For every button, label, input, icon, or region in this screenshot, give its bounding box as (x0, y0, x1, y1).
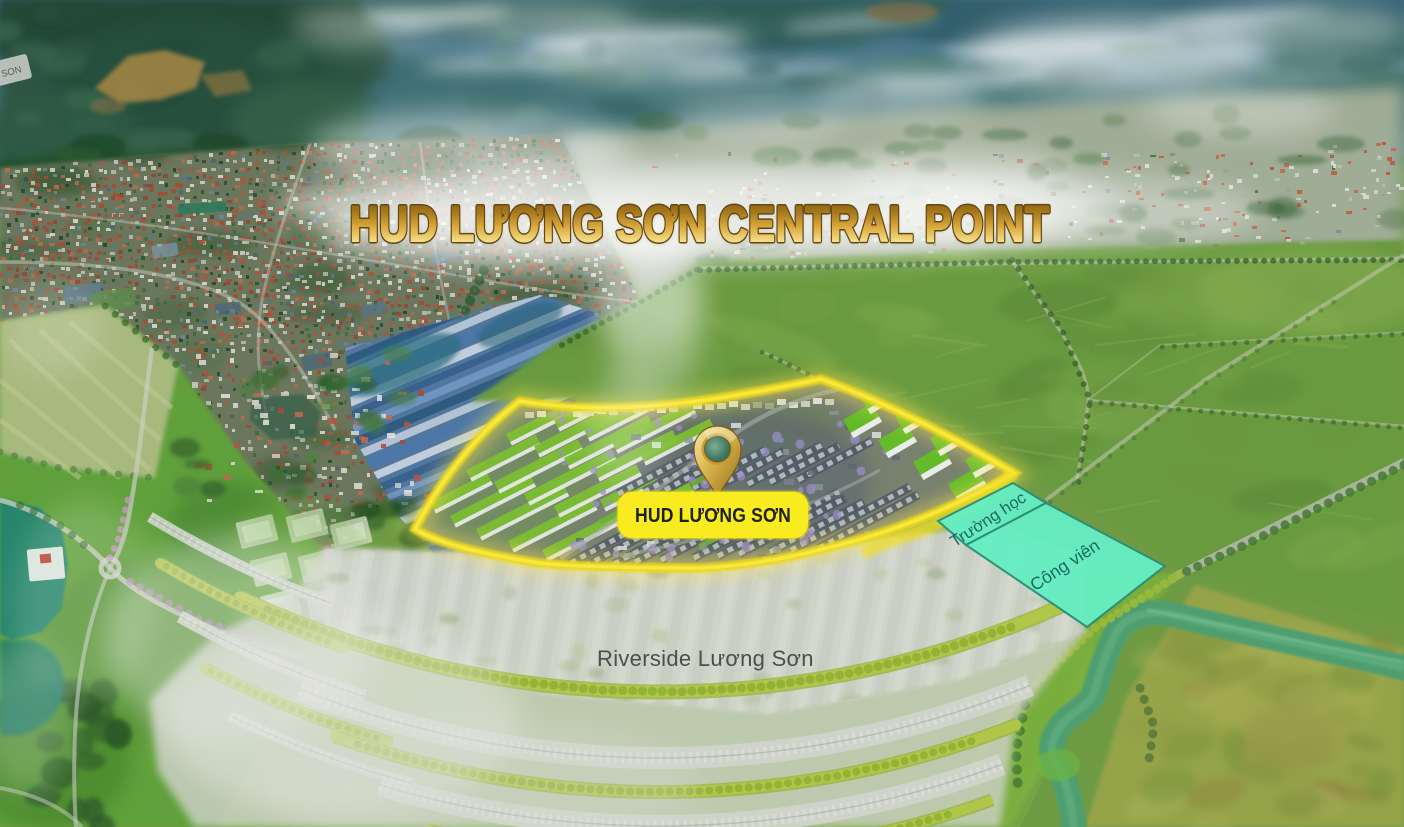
svg-text:HUD LƯƠNG SƠN: HUD LƯƠNG SƠN (635, 504, 791, 527)
svg-text:Riverside Lương Sơn: Riverside Lương Sơn (597, 646, 814, 671)
svg-text:HUD LƯƠNG SƠN CENTRAL POINT: HUD LƯƠNG SƠN CENTRAL POINT (350, 196, 1050, 252)
